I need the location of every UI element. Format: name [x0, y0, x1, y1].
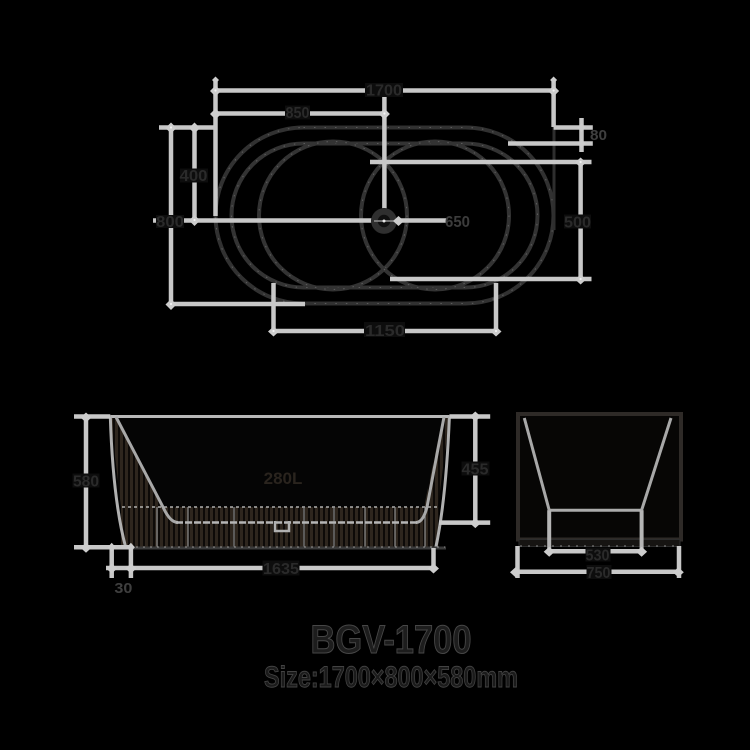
svg-text:80: 80 [590, 127, 607, 144]
svg-text:280L: 280L [264, 469, 303, 488]
svg-text:800: 800 [156, 214, 184, 231]
svg-text:1700: 1700 [366, 83, 402, 100]
svg-text:400: 400 [180, 168, 208, 185]
svg-text:530: 530 [586, 548, 610, 565]
svg-text:1635: 1635 [263, 561, 299, 578]
svg-text:580: 580 [73, 474, 99, 491]
svg-text:30: 30 [114, 580, 132, 597]
svg-text:500: 500 [564, 215, 591, 232]
svg-text:455: 455 [462, 462, 489, 479]
svg-text:750: 750 [587, 565, 611, 582]
svg-text:Size:1700×800×580mm: Size:1700×800×580mm [264, 661, 518, 694]
svg-text:BGV-1700: BGV-1700 [311, 618, 472, 662]
svg-text:850: 850 [286, 105, 310, 122]
svg-text:650: 650 [445, 214, 470, 231]
svg-text:1150: 1150 [365, 323, 405, 340]
